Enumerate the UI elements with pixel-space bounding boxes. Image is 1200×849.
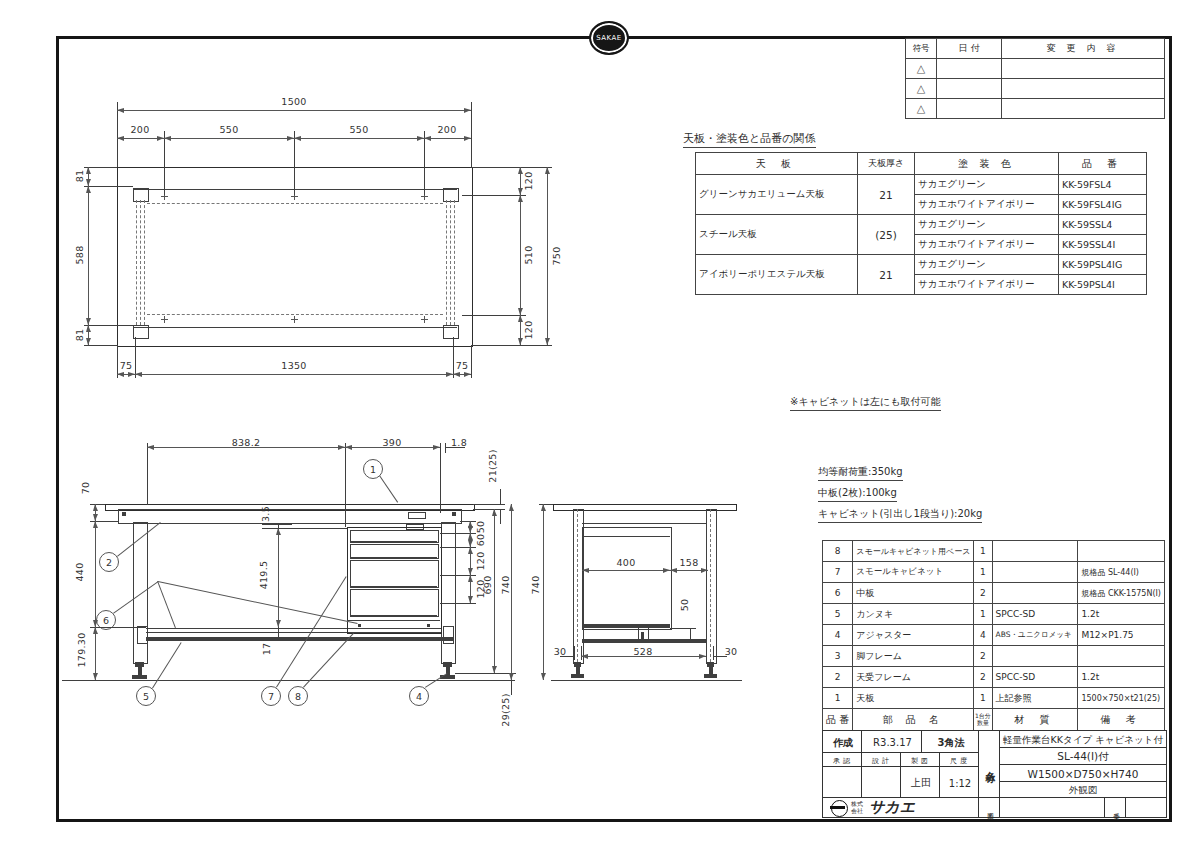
part-qty: 1 xyxy=(974,541,992,562)
part-no: 6 xyxy=(823,583,853,604)
adjuster-stem xyxy=(709,667,713,674)
load-note-2: 中板(2枚):100kg xyxy=(818,486,897,502)
dim-line xyxy=(95,521,96,627)
dim-line xyxy=(135,374,453,375)
part-material: SPCC-SD xyxy=(992,667,1078,688)
shelf-side xyxy=(582,624,670,628)
cabinet-base-line xyxy=(347,620,440,621)
part-remarks: 規格品 CKK-1575N(I) xyxy=(1078,583,1165,604)
paint-table: 天 板 天板厚さ 塗 装 色 品 番 グリーンサカエリューム天板 21 サカエグ… xyxy=(695,152,1147,295)
part-name: スモールキャビネット用ベース xyxy=(853,541,974,562)
dim-line xyxy=(88,186,89,325)
hidden-line xyxy=(577,509,578,662)
part-name: 天受フレーム xyxy=(853,667,974,688)
dim-line xyxy=(453,374,471,375)
kannuki-rail xyxy=(146,637,454,641)
adjuster-stem xyxy=(138,667,142,675)
dim-label: 50 xyxy=(679,599,690,612)
dim-label: 740 xyxy=(500,575,511,594)
revision-date-cell xyxy=(937,59,1002,79)
dim-label: 120 xyxy=(523,320,534,339)
dim-label: 550 xyxy=(349,124,368,135)
ext-line xyxy=(706,646,707,660)
ext-line xyxy=(471,167,552,168)
dim-label: 60 xyxy=(475,534,486,547)
adjuster-base xyxy=(704,674,717,678)
revision-symbol-icon: △ xyxy=(906,79,937,99)
board-thickness: 21 xyxy=(858,175,915,215)
part-no: 1 xyxy=(823,688,853,709)
dim-line xyxy=(88,325,89,345)
drawing-no-value xyxy=(999,797,1107,818)
dim-line xyxy=(164,138,294,139)
dim-line xyxy=(520,315,521,345)
revision-change-cell xyxy=(1002,79,1165,99)
dim-line xyxy=(117,138,164,139)
hidden-line xyxy=(446,200,447,325)
part-name: カンヌキ xyxy=(853,604,974,625)
dim-label: 21(25) xyxy=(487,449,498,482)
part-name: 脚フレーム xyxy=(853,646,974,667)
dim-tick xyxy=(690,628,691,640)
drawer-3 xyxy=(350,560,439,588)
drawer-edge xyxy=(350,615,437,617)
floor-line xyxy=(62,680,515,681)
dim-line xyxy=(294,138,424,139)
frame-edge-line xyxy=(133,327,457,328)
revision-table: 符号 日 付 変 更 内 容 △ △ △ xyxy=(905,38,1165,119)
part-remarks xyxy=(1078,646,1165,667)
frame-edge-line xyxy=(133,189,457,190)
ext-line xyxy=(262,528,347,529)
dim-label: 740 xyxy=(530,575,541,594)
part-remarks: 1.2t xyxy=(1078,667,1165,688)
dim-label: 838.2 xyxy=(232,437,261,448)
part-qty: 1 xyxy=(974,604,992,625)
part-name: アジャスター xyxy=(853,625,974,646)
part-material xyxy=(992,646,1078,667)
part-qty: 2 xyxy=(974,583,992,604)
ext-line xyxy=(670,640,696,641)
adjuster-stem xyxy=(576,667,580,674)
part-number: KK-59SSL4 xyxy=(1059,215,1147,235)
balloon-1: 1 xyxy=(363,459,383,479)
latch-plate xyxy=(408,512,426,519)
revision-col-date: 日 付 xyxy=(937,39,1002,59)
top-board-name: アイボリーポリエステル天板 xyxy=(696,255,858,295)
dim-label: 400 xyxy=(616,557,635,568)
hidden-line xyxy=(144,200,145,325)
dim-line xyxy=(470,521,471,533)
paint-col-top: 天 板 xyxy=(696,153,858,175)
part-remarks: 規格品 SL-44(I) xyxy=(1078,562,1165,583)
dim-label: 750 xyxy=(551,246,562,265)
part-material xyxy=(992,583,1078,604)
ext-line xyxy=(713,646,714,660)
part-no: 2 xyxy=(823,667,853,688)
part-qty: 2 xyxy=(974,667,992,688)
paint-col-color: 塗 装 色 xyxy=(915,153,1059,175)
dim-line xyxy=(470,547,471,575)
balloon-label: 2 xyxy=(106,557,112,568)
part-remarks: 1.2t xyxy=(1078,604,1165,625)
dim-label: 440 xyxy=(74,562,85,581)
dim-line xyxy=(543,504,544,680)
part-material: 上記参照 xyxy=(992,688,1078,709)
ext-line xyxy=(84,345,117,346)
dim-line xyxy=(520,195,521,315)
balloon-label: 1 xyxy=(370,464,376,475)
floor-line xyxy=(551,680,742,681)
load-note-3: キャビネット(引出し1段当り):20kg xyxy=(818,507,982,523)
ext-line xyxy=(84,186,133,187)
base-bolt xyxy=(427,624,430,627)
part-qty: 1 xyxy=(974,688,992,709)
cabinet-side xyxy=(582,527,672,630)
part-no: 5 xyxy=(823,604,853,625)
sakae-logo-text: SAKAE xyxy=(596,34,622,42)
sakae-logo-icon xyxy=(831,800,848,817)
dim-label: 75 xyxy=(120,360,133,371)
revision-date-cell xyxy=(937,99,1002,119)
parts-col-material: 材 質 xyxy=(992,709,1078,731)
drawer-edge xyxy=(350,557,437,559)
dim-label: 200 xyxy=(437,124,456,135)
dim-label: 390 xyxy=(382,437,401,448)
dim-tick xyxy=(278,627,279,641)
dim-line xyxy=(547,167,548,345)
hidden-line xyxy=(454,200,455,325)
part-material: ABS・ユニクロメッキ xyxy=(992,625,1078,646)
paint-col-thickness: 天板厚さ xyxy=(858,153,915,175)
board-thickness: (25) xyxy=(858,215,915,255)
dim-label: 3.5 xyxy=(260,506,271,522)
paint-color: サカエホワイトアイボリー xyxy=(915,275,1059,295)
parts-table: 8スモールキャビネット用ベース1 7スモールキャビネット1規格品 SL-44(I… xyxy=(822,540,1165,731)
hidden-line xyxy=(147,203,443,204)
order-no-value xyxy=(1125,797,1167,818)
part-material xyxy=(992,562,1078,583)
cabinet-note: ※キャビネットは左にも取付可能 xyxy=(790,395,941,411)
paint-table-title: 天板・塗装色と品番の関係 xyxy=(683,131,816,148)
ext-line xyxy=(84,325,133,326)
apron-side-line xyxy=(582,523,706,524)
dim-line xyxy=(117,110,471,111)
ext-line xyxy=(670,628,696,629)
drawer-edge xyxy=(350,541,437,543)
dim-line xyxy=(582,570,670,571)
part-remarks xyxy=(1078,541,1165,562)
revision-symbol-icon: △ xyxy=(906,59,937,79)
dim-label: 588 xyxy=(74,245,85,264)
dim-label: 200 xyxy=(130,124,149,135)
part-qty: 2 xyxy=(974,646,992,667)
balloon-label: 5 xyxy=(143,691,149,702)
ext-line xyxy=(471,345,552,346)
part-number: KK-59FSL4 xyxy=(1059,175,1147,195)
ext-line xyxy=(90,627,146,628)
dim-line xyxy=(670,570,708,571)
part-number: KK-59FSL4IG xyxy=(1059,195,1147,215)
top-board-name: スチール天板 xyxy=(696,215,858,255)
design-value xyxy=(861,766,903,800)
dim-label: 419.5 xyxy=(258,561,269,590)
ext-line xyxy=(471,345,472,378)
load-note-1: 均等耐荷重:350kg xyxy=(818,465,903,481)
company-name: サカエ xyxy=(869,798,915,817)
paint-col-partno: 品 番 xyxy=(1059,153,1147,175)
part-number: KK-59PSL4I xyxy=(1059,275,1147,295)
balloon-label: 4 xyxy=(416,691,422,702)
dim-label: 17 xyxy=(261,643,272,656)
dim-label: 550 xyxy=(219,124,238,135)
dim-label: 179.30 xyxy=(76,632,87,667)
balloon-label: 6 xyxy=(103,615,109,626)
dim-line xyxy=(520,167,521,195)
dim-line xyxy=(117,374,135,375)
dim-line xyxy=(88,167,89,186)
dim-label: 690 xyxy=(482,575,493,594)
base-bolt xyxy=(358,624,361,627)
ext-line xyxy=(455,673,516,674)
part-no: 8 xyxy=(823,541,853,562)
dim-line xyxy=(278,528,279,627)
parts-col-qty: 1台分数量 xyxy=(974,709,992,731)
shelf-bracket xyxy=(443,626,454,644)
ext-line xyxy=(511,680,512,695)
balloon-label: 8 xyxy=(295,691,301,702)
revision-change-cell xyxy=(1002,59,1165,79)
part-no: 7 xyxy=(823,562,853,583)
part-name: スモールキャビネット xyxy=(853,562,974,583)
top-board-name: グリーンサカエリューム天板 xyxy=(696,175,858,215)
part-material xyxy=(992,541,1078,562)
dim-label: 81 xyxy=(74,170,85,183)
hidden-line xyxy=(136,200,137,325)
hidden-line xyxy=(147,314,443,315)
dim-line xyxy=(95,627,96,680)
revision-date-cell xyxy=(937,79,1002,99)
part-no: 3 xyxy=(823,646,853,667)
drawing-sheet-page: { "logo": {"text": "SAKAE", "company_pre… xyxy=(0,0,1200,849)
dim-label: 70 xyxy=(80,482,91,495)
parts-col-remarks: 備 考 xyxy=(1078,709,1165,731)
dim-label: 29(25) xyxy=(500,693,511,726)
ext-line xyxy=(462,315,526,316)
dim-label: 1500 xyxy=(281,96,306,107)
part-name: 中板 xyxy=(853,583,974,604)
sakae-logo-icon: SAKAE xyxy=(589,21,629,55)
hidden-line xyxy=(450,200,451,325)
dim-line xyxy=(424,138,471,139)
revision-col-change: 変 更 内 容 xyxy=(1002,39,1165,59)
balloon-7: 7 xyxy=(261,686,281,706)
dim-label: 1.8 xyxy=(451,437,467,448)
part-number: KK-59PSL4IG xyxy=(1059,255,1147,275)
part-no: 4 xyxy=(823,625,853,646)
balloon-4: 4 xyxy=(409,686,429,706)
leg-plan xyxy=(443,325,459,339)
dim-label: 1350 xyxy=(281,360,306,371)
dim-line xyxy=(470,533,471,547)
ext-line xyxy=(574,646,575,660)
part-material: SPCC-SD xyxy=(992,604,1078,625)
part-remarks: 1500×750×t21(25) xyxy=(1078,688,1165,709)
dim-tick xyxy=(500,489,501,504)
revision-change-cell xyxy=(1002,99,1165,119)
paint-color: サカエグリーン xyxy=(915,215,1059,235)
ext-line xyxy=(345,443,346,527)
balloon-2: 2 xyxy=(99,552,119,572)
adjuster-base xyxy=(571,674,584,678)
approve-value xyxy=(822,766,864,800)
ext-line xyxy=(445,443,446,453)
paint-color: サカエホワイトアイボリー xyxy=(915,235,1059,255)
bolt xyxy=(452,512,456,516)
balloon-8: 8 xyxy=(288,686,308,706)
ext-line xyxy=(440,443,441,513)
company-logo-cell: 株式会社 サカエ xyxy=(822,797,981,818)
balloon-label: 7 xyxy=(268,691,274,702)
part-name: 天板 xyxy=(853,688,974,709)
paint-color: サカエグリーン xyxy=(915,255,1059,275)
hidden-line xyxy=(140,200,141,325)
company-prefix: 株式会社 xyxy=(851,800,867,814)
draft-value: 上田 xyxy=(900,766,942,800)
cabinet-side-line xyxy=(582,536,670,537)
plus-mark xyxy=(161,316,168,323)
revision-col-symbol: 符号 xyxy=(906,39,937,59)
qty-label-bottom: 数量 xyxy=(977,719,989,726)
part-remarks: M12×P1.75 xyxy=(1078,625,1165,646)
plus-mark xyxy=(291,316,298,323)
dim-line xyxy=(470,575,471,603)
dim-label: 120 xyxy=(475,551,486,570)
dim-line xyxy=(494,509,495,673)
revision-symbol-icon: △ xyxy=(906,99,937,119)
dim-tick xyxy=(500,509,501,524)
dim-label: 81 xyxy=(74,329,85,342)
board-thickness: 21 xyxy=(858,255,915,295)
drawer-4 xyxy=(350,589,439,617)
shelf-bracket xyxy=(137,626,148,644)
ext-line xyxy=(471,102,472,167)
dim-line xyxy=(95,504,96,521)
ext-line xyxy=(440,603,476,604)
ext-line xyxy=(462,195,526,196)
dim-label: 158 xyxy=(679,557,698,568)
part-qty: 1 xyxy=(974,562,992,583)
hidden-line xyxy=(710,509,711,662)
parts-col-no: 品 番 xyxy=(823,709,853,731)
plus-mark xyxy=(421,316,428,323)
right-leg-side xyxy=(706,509,717,664)
dim-label: 50 xyxy=(475,521,486,534)
dim-label: 30 xyxy=(554,646,567,657)
scale-value: 1:12 xyxy=(939,766,981,800)
drawer-edge xyxy=(350,586,437,588)
dim-line xyxy=(511,504,512,680)
part-number: KK-59SSL4I xyxy=(1059,235,1147,255)
dim-label: 30 xyxy=(725,646,738,657)
paint-color: サカエグリーン xyxy=(915,175,1059,195)
ext-line xyxy=(147,443,148,505)
dim-label: 510 xyxy=(523,245,534,264)
paint-color: サカエホワイトアイボリー xyxy=(915,195,1059,215)
part-qty: 4 xyxy=(974,625,992,646)
adjuster-base xyxy=(132,675,147,679)
dim-label: 528 xyxy=(633,646,652,657)
dim-label: 75 xyxy=(456,360,469,371)
parts-col-name: 部 品 名 xyxy=(853,709,974,731)
balloon-5: 5 xyxy=(136,686,156,706)
ext-line xyxy=(473,504,505,505)
ext-line xyxy=(262,524,292,525)
bolt xyxy=(122,512,126,516)
dim-label: 120 xyxy=(523,171,534,190)
